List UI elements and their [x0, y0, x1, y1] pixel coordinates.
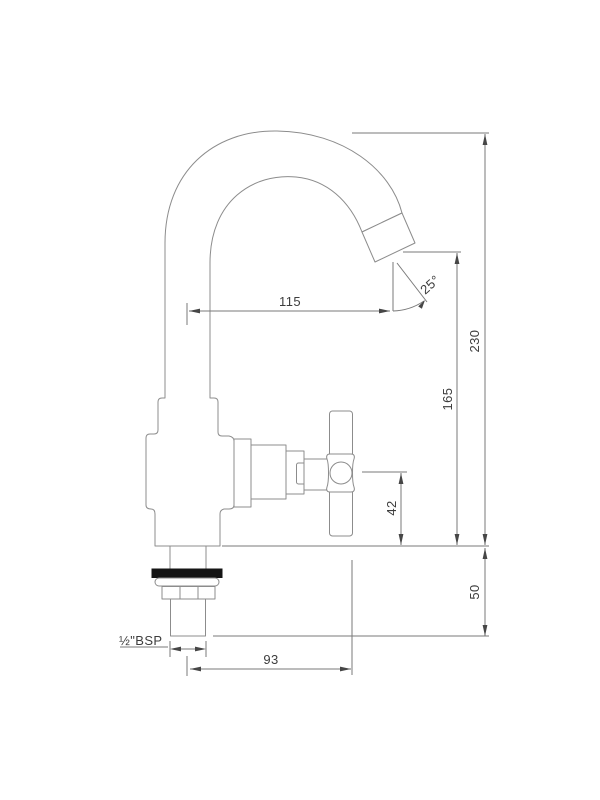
dim-total-height-arrow-top [483, 134, 488, 145]
rubber-washer [152, 569, 222, 578]
faucet-diagram: 115 25° 230 165 42 50 93 ½"BSP [0, 0, 600, 800]
label-below-deck: 50 [467, 584, 482, 599]
dim-handle-height-arrow-bottom [399, 534, 404, 545]
dim-outlet-height-arrow-top [455, 253, 460, 264]
inlet-pipe [171, 599, 206, 636]
dim-inlet-thread-arrow-right [195, 647, 206, 652]
drawing-page: 115 25° 230 165 42 50 93 ½"BSP [0, 0, 600, 800]
dim-handle-height-arrow-top [399, 473, 404, 484]
mounting-flange [155, 578, 219, 586]
dim-handle-offset-arrow-left [190, 667, 201, 672]
label-handle-offset: 93 [263, 652, 278, 667]
dim-spout-reach-arrow-right [379, 309, 390, 314]
label-inlet-thread: ½"BSP [119, 633, 162, 648]
valve-stem [304, 459, 329, 490]
faucet-body-group [146, 131, 415, 636]
handle-hub-circle [330, 462, 352, 484]
dim-handle-offset-arrow-right [340, 667, 351, 672]
bonnet [251, 445, 286, 499]
shank [170, 546, 206, 569]
label-spout-reach: 115 [279, 294, 301, 309]
dim-total-height-arrow-bottom [483, 534, 488, 545]
label-total-height: 230 [467, 330, 482, 353]
dim-outlet-height-arrow-bottom [455, 534, 460, 545]
label-outlet-angle: 25° [417, 272, 443, 297]
dim-inlet-thread-arrow-left [170, 647, 181, 652]
dim-below-deck-arrow-top [483, 548, 488, 559]
label-handle-height: 42 [384, 500, 399, 515]
label-outlet-height: 165 [440, 388, 455, 411]
mounting-nut [162, 587, 215, 600]
bonnet-flange-ring [234, 439, 251, 507]
dim-below-deck-arrow-bottom [483, 625, 488, 636]
